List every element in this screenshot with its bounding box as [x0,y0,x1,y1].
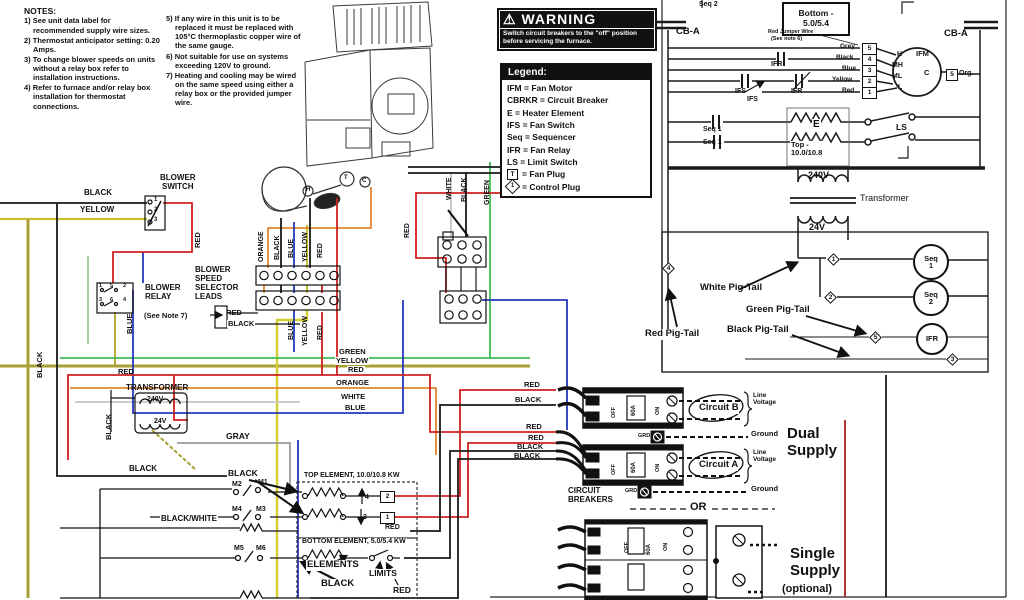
row-white-label: WHITE [340,393,366,401]
cb-a-right-label: CB-A [944,29,968,40]
left-black-label: BLACK [36,352,44,378]
sequencer-1-coil: Seq 1 [913,244,949,280]
transformer-240v-label: 240V [808,170,829,180]
rt-black-label: BLACK [461,178,469,203]
feed-wire-label: BLACK [515,396,541,404]
single-amp-label: 60A [646,544,653,555]
single-on-label: ON [663,543,669,551]
heater-element-label: E [812,119,821,130]
line-voltage-a-label: Line Voltage [753,449,776,464]
xfmr-red-label: RED [118,368,134,376]
center-240v-label: 240V [147,396,163,404]
blower-switch-label: BLOWER SWITCH [160,174,196,192]
wiring-diagram-page: NOTES: 1) See unit data label for recomm… [0,0,1024,600]
motor-h-label: H [306,187,310,194]
gray-wire-label: GRAY [226,432,250,442]
row-red-label: RED [347,366,365,374]
legend-entry: CBRKR = Circuit Breaker [502,94,650,106]
legend-entry: E = Heater Element [502,107,650,119]
breaker-b-on-label: ON [655,407,661,415]
terminal-m6: M5 [234,545,244,553]
blower-motor-illustration [262,167,370,211]
line-voltage-b-label: Line Voltage [753,392,776,407]
plug-pin-3: 3 [363,514,367,522]
circuit-b-label: Circuit B [699,403,739,414]
switch-terminal-2: 2 [154,207,157,214]
grd-b-label: GRD [638,433,650,439]
notes-column-2: 5) If any wire in this unit is to be rep… [166,14,306,108]
legend-control-plug: = Control Plug [522,181,580,193]
out-red-label: RED [317,325,325,340]
red-pigtail-label: Red Pig-Tail [645,329,699,340]
motor-terminal-h: H [897,51,902,59]
black-label-b: BLACK [227,469,259,479]
switch-terminal-1: 1 [154,197,157,204]
note-item: 3) To change blower speeds on units with… [24,55,160,82]
notes-column-1: NOTES: 1) See unit data label for recomm… [24,6,160,112]
motor-plug-5: 5 [946,69,958,81]
element-contact-network [60,485,310,598]
wire-yellow-label: Yellow [832,76,852,83]
relay-terminal: 2 [123,283,126,289]
feed-black-label: BLACK [84,189,112,198]
warning-box: ⚠ WARNING Switch circuit breakers to the… [497,8,657,51]
element-red-label: RED [385,524,400,532]
bottom-element-title: BOTTOM ELEMENT, 5.0/5.4 KW [301,538,407,546]
center-transformer-label: TRANSFORMER [126,384,188,393]
ifr-contact-label-a: IFR [771,61,782,69]
motor-c-label: C [362,178,366,185]
note-item: 7) Heating and cooling may be wired on t… [166,71,306,108]
legend-entry: IFS = Fan Switch [502,119,650,131]
ifs-contact-label-b: IFS [747,96,758,104]
bottom-red-label: RED [392,586,412,596]
note-item: 1) See unit data label for recommended s… [24,16,160,34]
conn-black-label: BLACK [274,236,282,261]
plug-pin-1: 1 [380,512,395,524]
red-jumper-note: (See note 6) [771,36,802,42]
center-24v-label: 24V [154,418,166,426]
blue-vertical-label: BLUE [126,314,134,334]
relay-terminal: 4 [123,297,126,303]
motor-terminal-c: C [924,69,929,77]
ground-a-label: Ground [751,485,778,493]
grd-a-label: GRD [625,488,637,494]
legend-title: Legend: [502,65,650,80]
wire-blue-label: Blue [842,65,856,72]
red-jumper-label: Red Jumper Wire [768,29,813,35]
org-wire-label: Org. [959,70,973,78]
rt-red-label: RED [404,223,412,238]
circuit-breakers-label: CIRCUIT BREAKERS [568,487,613,505]
terminal-m2: M2 [232,481,242,489]
conn-orange-label: ORANGE [258,231,266,262]
note-item: 6) Not suitable for use on systems excee… [166,52,306,70]
single-optional-label: (optional) [782,583,832,595]
breaker-b-off-label: OFF [611,407,617,418]
warning-title: WARNING [521,11,596,27]
top-element-title: TOP ELEMENT, 10.0/10.8 KW [303,472,400,480]
terminal-m4: M4 [232,506,242,514]
relay-terminal: 5 [110,283,113,289]
see-note-7-label: (See Note 7) [144,312,187,320]
ifs-contact-label-a: IFS [735,88,746,96]
row-orange-label: ORANGE [335,379,370,387]
xfmr-black-label: BLACK [105,414,113,440]
motor-terminal-ml: ML [892,73,902,81]
control-plug-4: 4 [662,262,675,275]
terminal-m1: M1 [258,479,268,487]
fan-relay-coil: IFR [916,323,948,355]
conn-red-label: RED [317,243,325,258]
limit-switch-label: LS [896,123,907,133]
red-vertical-label: RED [194,232,202,248]
lead-red-label: RED [226,309,242,317]
feed-wire-label: BLACK [514,452,540,460]
green-pigtail-label: Green Pig-Tail [746,305,810,316]
relay-terminal: 6 [110,297,113,303]
black-label-a: BLACK [128,465,158,474]
ground-b-label: Ground [751,430,778,438]
speed-selector-leads-label: BLOWER SPEED SELECTOR LEADS [195,266,238,302]
feed-wire-label: RED [526,423,542,431]
ifr-contact-label-b: IFR [791,88,802,96]
furnace-illustration [305,2,433,166]
fan-plug-terminal-1: 1 [862,87,877,99]
motor-terminal-mh: MH [892,62,903,70]
relay-terminal: 1 [99,283,102,289]
note-item: 4) Refer to furnace and/or relay box ins… [24,83,160,110]
wire-black-label: Black [836,54,853,61]
rt-white-label: WHITE [446,177,454,200]
black-pigtail-label: Black Pig-Tail [727,325,789,336]
feed-wire-label: RED [524,381,540,389]
breaker-a-amp-label: 60A [631,462,638,473]
white-pigtail-label: White Pig-Tail [700,283,762,294]
legend-entry: LS = Limit Switch [502,156,650,168]
legend-entry: IFM = Fan Motor [502,82,650,94]
plug-pin-4: 4 [365,494,369,502]
wire-grey-label: Grey [840,43,855,50]
warning-body: Switch circuit breakers to the "off" pos… [499,28,655,49]
cb-a-left-label: CB-A [676,27,700,38]
seq2-top-label: Seq 2 [699,1,718,9]
dual-supply-label: Dual Supply [787,426,837,459]
conn-blue-label: BLUE [288,239,296,258]
motor-terminal-l: L [898,84,902,92]
conn-yellow-label: YELLOW [302,232,310,262]
switch-terminal-3: 3 [154,217,157,224]
lead-black-label: BLACK [227,320,255,328]
note-item: 5) If any wire in this unit is to be rep… [166,14,306,51]
plug-pin-2: 2 [380,491,395,503]
single-off-label: OFF [624,542,630,553]
or-label: OR [690,501,707,513]
elements-label: ELEMENTS [306,560,360,571]
ifm-label: IFM [916,50,929,58]
bottom-black-label: BLACK [320,579,355,590]
notes-title: NOTES: [24,6,160,16]
legend-fan-plug: = Fan Plug [522,168,565,180]
control-plug-2: 2 [824,291,837,304]
out-yellow-label: YELLOW [302,316,310,346]
wire-red-label: Red [842,87,854,94]
single-supply-label: Single Supply [790,546,840,579]
control-plug-3: 3 [946,353,959,366]
blower-relay-label: BLOWER RELAY [145,284,181,302]
top-element-rating: Top - 10.0/10.8 [790,141,823,158]
black-white-label: BLACK/WHITE [160,515,218,524]
breaker-a-off-label: OFF [611,464,617,475]
control-plug-1: 1 [827,253,840,266]
control-plug-5: 5 [869,331,882,344]
terminal-m5: M6 [256,545,266,553]
row-blue-label: BLUE [344,404,366,412]
seq1-contact-label-b: Seq 1 [703,139,722,147]
out-blue-label: BLUE [288,321,296,340]
circuit-a-label: Circuit A [699,460,738,471]
feed-yellow-label: YELLOW [80,206,114,215]
sequencer-2-coil: Seq 2 [913,280,949,316]
rt-green-label: GREEN [484,180,492,205]
control-plug-icon: 1 [505,179,521,195]
breaker-a-on-label: ON [655,464,661,472]
terminal-m3: M3 [256,506,266,514]
breaker-b-amp-label: 60A [631,405,638,416]
motor-t-label: T [344,175,348,182]
transformer-label: Transformer [860,193,909,203]
legend-entry: Seq = Sequencer [502,131,650,143]
legend-entry: IFR = Fan Relay [502,144,650,156]
note-item: 2) Thermostat anticipator setting: 0.20 … [24,36,160,54]
limits-label: LIMITS [368,569,398,579]
relay-terminal: 3 [99,297,102,303]
seq1-contact-label-a: Seq 1 [703,126,722,134]
warning-icon: ⚠ [503,11,517,27]
transformer-24v-label: 24V [809,222,825,232]
legend-box: Legend: IFM = Fan Motor CBRKR = Circuit … [500,63,652,198]
